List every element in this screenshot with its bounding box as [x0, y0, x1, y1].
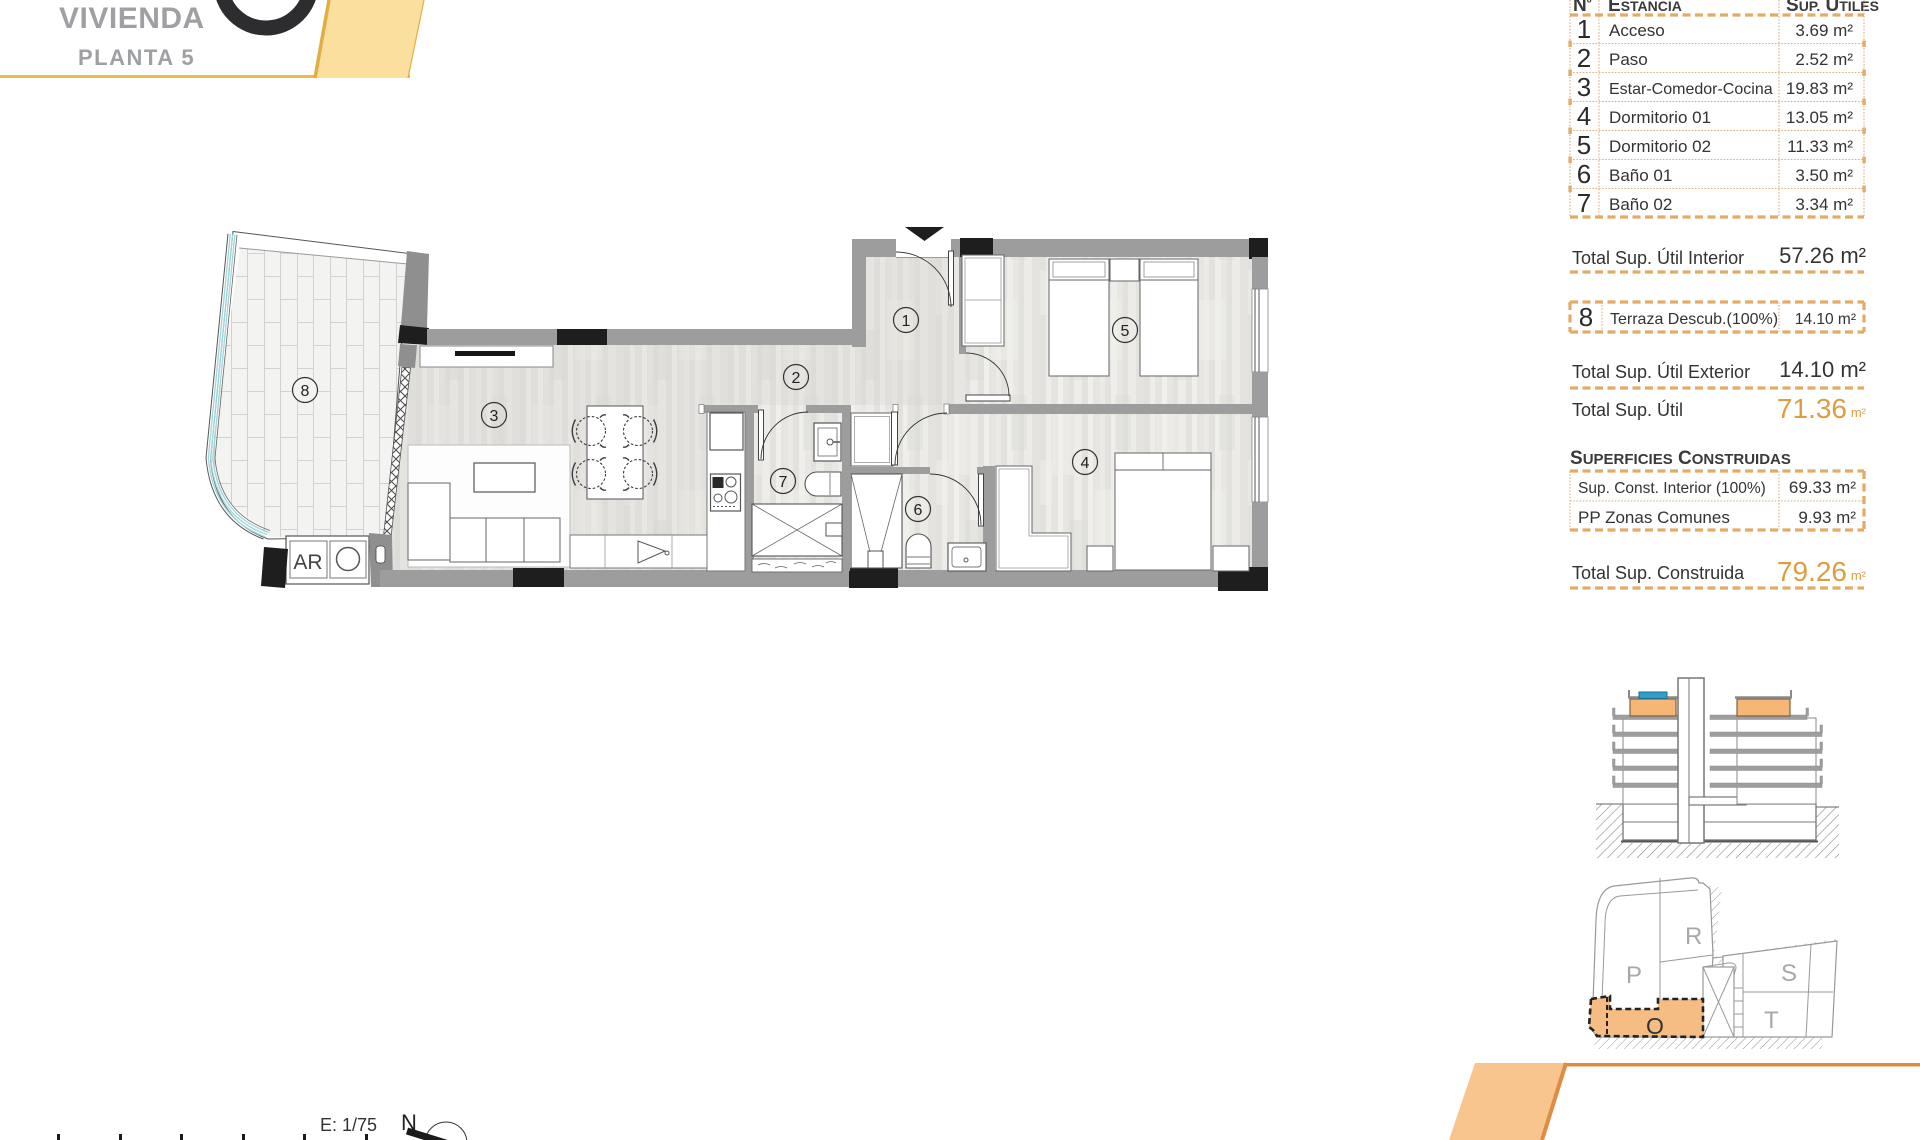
- svg-text:Paso: Paso: [1609, 50, 1648, 69]
- svg-text:PLANTA 5: PLANTA 5: [78, 45, 195, 70]
- svg-text:3.34 m²: 3.34 m²: [1795, 195, 1853, 214]
- svg-text:m²: m²: [1851, 405, 1867, 420]
- svg-text:PP Zonas Comunes: PP Zonas Comunes: [1578, 508, 1730, 527]
- svg-text:VIVIENDA: VIVIENDA: [59, 2, 205, 35]
- svg-text:14.10 m²: 14.10 m²: [1795, 311, 1856, 328]
- svg-text:2: 2: [792, 370, 801, 387]
- svg-text:Total Sup. Útil Interior: Total Sup. Útil Interior: [1572, 247, 1744, 268]
- svg-text:T: T: [1764, 1007, 1779, 1034]
- svg-text:11.33 m²: 11.33 m²: [1787, 137, 1853, 156]
- svg-text:Dormitorio 02: Dormitorio 02: [1609, 137, 1711, 156]
- svg-text:57.26 m²: 57.26 m²: [1779, 243, 1866, 268]
- svg-text:19.83 m²: 19.83 m²: [1786, 79, 1853, 98]
- svg-text:P: P: [1626, 962, 1642, 989]
- svg-text:7: 7: [779, 474, 788, 491]
- svg-text:Terraza Descub.(100%): Terraza Descub.(100%): [1610, 311, 1778, 328]
- svg-text:69.33 m²: 69.33 m²: [1789, 478, 1856, 497]
- svg-text:4: 4: [1577, 101, 1591, 131]
- svg-text:14.10 m²: 14.10 m²: [1779, 357, 1866, 382]
- svg-text:71.36: 71.36: [1777, 393, 1847, 424]
- svg-text:O: O: [1646, 1013, 1664, 1039]
- svg-text:Baño 01: Baño 01: [1609, 166, 1672, 185]
- svg-text:1: 1: [1577, 14, 1591, 44]
- svg-text:m²: m²: [1851, 568, 1867, 583]
- svg-text:1: 1: [902, 313, 911, 330]
- svg-text:AR: AR: [293, 551, 322, 574]
- svg-text:79.26: 79.26: [1777, 556, 1847, 587]
- svg-text:9.93 m²: 9.93 m²: [1798, 508, 1856, 527]
- svg-text:2.52 m²: 2.52 m²: [1795, 50, 1853, 69]
- svg-text:3: 3: [490, 408, 499, 425]
- svg-text:3.69 m²: 3.69 m²: [1795, 21, 1853, 40]
- svg-text:Estar-Comedor-Cocina: Estar-Comedor-Cocina: [1609, 81, 1773, 98]
- svg-text:2: 2: [1577, 43, 1591, 73]
- svg-text:Baño 02: Baño 02: [1609, 195, 1672, 214]
- svg-text:E: 1/75: E: 1/75: [320, 1115, 377, 1135]
- svg-text:3: 3: [1577, 72, 1591, 102]
- svg-text:Sup. Const. Interior (100%): Sup. Const. Interior (100%): [1578, 480, 1766, 497]
- svg-text:4: 4: [1081, 455, 1090, 472]
- svg-text:Dormitorio 01: Dormitorio 01: [1609, 108, 1711, 127]
- svg-text:13.05 m²: 13.05 m²: [1786, 108, 1853, 127]
- svg-text:6: 6: [914, 502, 923, 519]
- svg-text:SUPERFICIES CONSTRUIDAS: SUPERFICIES CONSTRUIDAS: [1570, 448, 1791, 469]
- svg-text:Acceso: Acceso: [1609, 21, 1665, 40]
- svg-text:5: 5: [1121, 323, 1130, 340]
- svg-text:6: 6: [1577, 159, 1591, 189]
- svg-text:Total Sup. Útil Exterior: Total Sup. Útil Exterior: [1572, 361, 1750, 382]
- svg-text:8: 8: [1579, 302, 1593, 332]
- svg-text:8: 8: [301, 383, 310, 400]
- svg-text:3.50 m²: 3.50 m²: [1795, 166, 1853, 185]
- svg-text:R: R: [1685, 923, 1702, 950]
- svg-text:5: 5: [1577, 130, 1591, 160]
- svg-text:S: S: [1781, 960, 1797, 987]
- svg-text:7: 7: [1577, 188, 1591, 218]
- svg-text:Total Sup. Construida: Total Sup. Construida: [1572, 563, 1745, 583]
- svg-text:Total Sup. Útil: Total Sup. Útil: [1572, 399, 1683, 420]
